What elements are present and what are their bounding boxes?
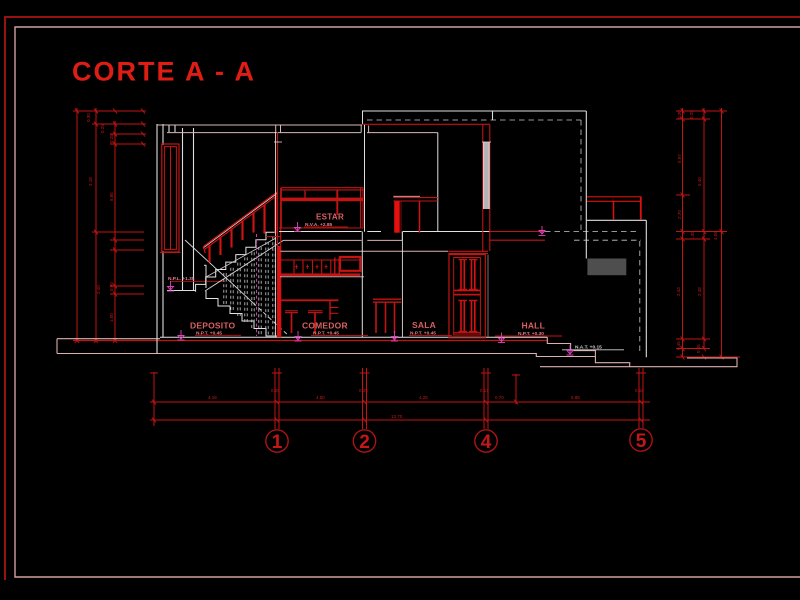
svg-text:CORTE A - A: CORTE A - A bbox=[72, 57, 256, 87]
svg-text:1: 1 bbox=[272, 432, 283, 453]
svg-text:5.85: 5.85 bbox=[109, 192, 114, 201]
svg-text:4.50: 4.50 bbox=[316, 395, 325, 400]
svg-text:0.30: 0.30 bbox=[86, 113, 91, 122]
svg-text:0.25: 0.25 bbox=[271, 388, 280, 393]
svg-text:1.35: 1.35 bbox=[690, 231, 695, 240]
svg-text:0.45: 0.45 bbox=[676, 341, 681, 350]
svg-text:4.05: 4.05 bbox=[713, 231, 718, 240]
svg-text:HALL: HALL bbox=[522, 321, 545, 331]
svg-text:0.25: 0.25 bbox=[109, 134, 114, 143]
svg-text:13.70: 13.70 bbox=[391, 414, 403, 419]
svg-text:3.18: 3.18 bbox=[88, 177, 93, 186]
svg-text:ESTAR: ESTAR bbox=[316, 213, 344, 222]
svg-text:0.15: 0.15 bbox=[635, 388, 644, 393]
svg-text:0.45: 0.45 bbox=[696, 344, 701, 353]
svg-text:COMEDOR: COMEDOR bbox=[302, 321, 348, 331]
svg-text:2.40: 2.40 bbox=[96, 285, 101, 294]
svg-text:0.17: 0.17 bbox=[480, 388, 489, 393]
svg-text:0.25: 0.25 bbox=[100, 124, 105, 133]
svg-text:4.18: 4.18 bbox=[208, 395, 217, 400]
svg-text:SALA: SALA bbox=[412, 320, 436, 330]
svg-text:5.97: 5.97 bbox=[677, 154, 682, 163]
svg-text:4: 4 bbox=[481, 432, 492, 453]
svg-text:0.30: 0.30 bbox=[677, 110, 682, 119]
svg-text:0.25: 0.25 bbox=[689, 110, 694, 119]
svg-text:2.48: 2.48 bbox=[697, 287, 702, 296]
svg-text:5.40: 5.40 bbox=[697, 177, 702, 186]
svg-text:2: 2 bbox=[359, 432, 370, 453]
svg-text:0.25: 0.25 bbox=[359, 388, 368, 393]
svg-text:5: 5 bbox=[636, 431, 647, 452]
svg-text:2.43: 2.43 bbox=[676, 287, 681, 296]
svg-text:0.70: 0.70 bbox=[495, 395, 504, 400]
svg-text:0.90: 0.90 bbox=[109, 282, 114, 291]
svg-text:DEPOSITO: DEPOSITO bbox=[190, 321, 236, 331]
svg-text:4.25: 4.25 bbox=[419, 395, 428, 400]
svg-text:2.70: 2.70 bbox=[677, 210, 682, 219]
svg-text:5.88: 5.88 bbox=[571, 395, 580, 400]
svg-text:1.00: 1.00 bbox=[109, 313, 114, 322]
